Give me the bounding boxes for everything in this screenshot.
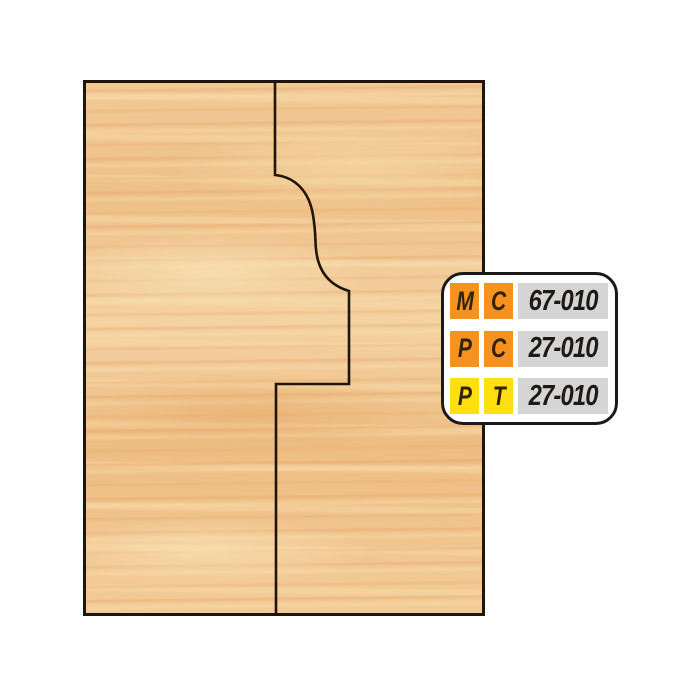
cutter-series-letter-text: P — [458, 335, 471, 362]
cutter-series-letter: P — [450, 331, 479, 367]
cutter-series-letter-text: P — [458, 383, 471, 410]
cutter-part-number: 67-010 — [518, 283, 608, 319]
cutter-part-number-text: 27-010 — [528, 334, 597, 363]
cutter-series-letter-text: M — [456, 288, 473, 315]
product-illustration: M C 67-010 P C 27-010 P T 27-010 — [0, 0, 700, 700]
cutter-type-letter: T — [484, 378, 513, 414]
cutter-part-number: 27-010 — [518, 331, 608, 367]
cutter-code-row: M C 67-010 — [450, 283, 608, 319]
cutter-part-number-text: 27-010 — [528, 382, 597, 411]
cutter-series-letter: M — [450, 283, 479, 319]
cutter-type-letter: C — [484, 331, 513, 367]
cutter-type-letter-text: C — [491, 288, 505, 315]
cutter-part-number-text: 67-010 — [528, 287, 597, 316]
cutter-code-row: P T 27-010 — [450, 378, 608, 414]
cutter-type-letter: C — [484, 283, 513, 319]
cutter-code-row: P C 27-010 — [450, 331, 608, 367]
wood-panel — [83, 80, 485, 616]
cutter-type-letter-text: T — [492, 383, 504, 410]
cutter-part-number: 27-010 — [518, 378, 608, 414]
cutter-series-letter: P — [450, 378, 479, 414]
cutter-type-letter-text: C — [491, 335, 505, 362]
cutter-code-badge: M C 67-010 P C 27-010 P T 27-010 — [441, 272, 618, 425]
